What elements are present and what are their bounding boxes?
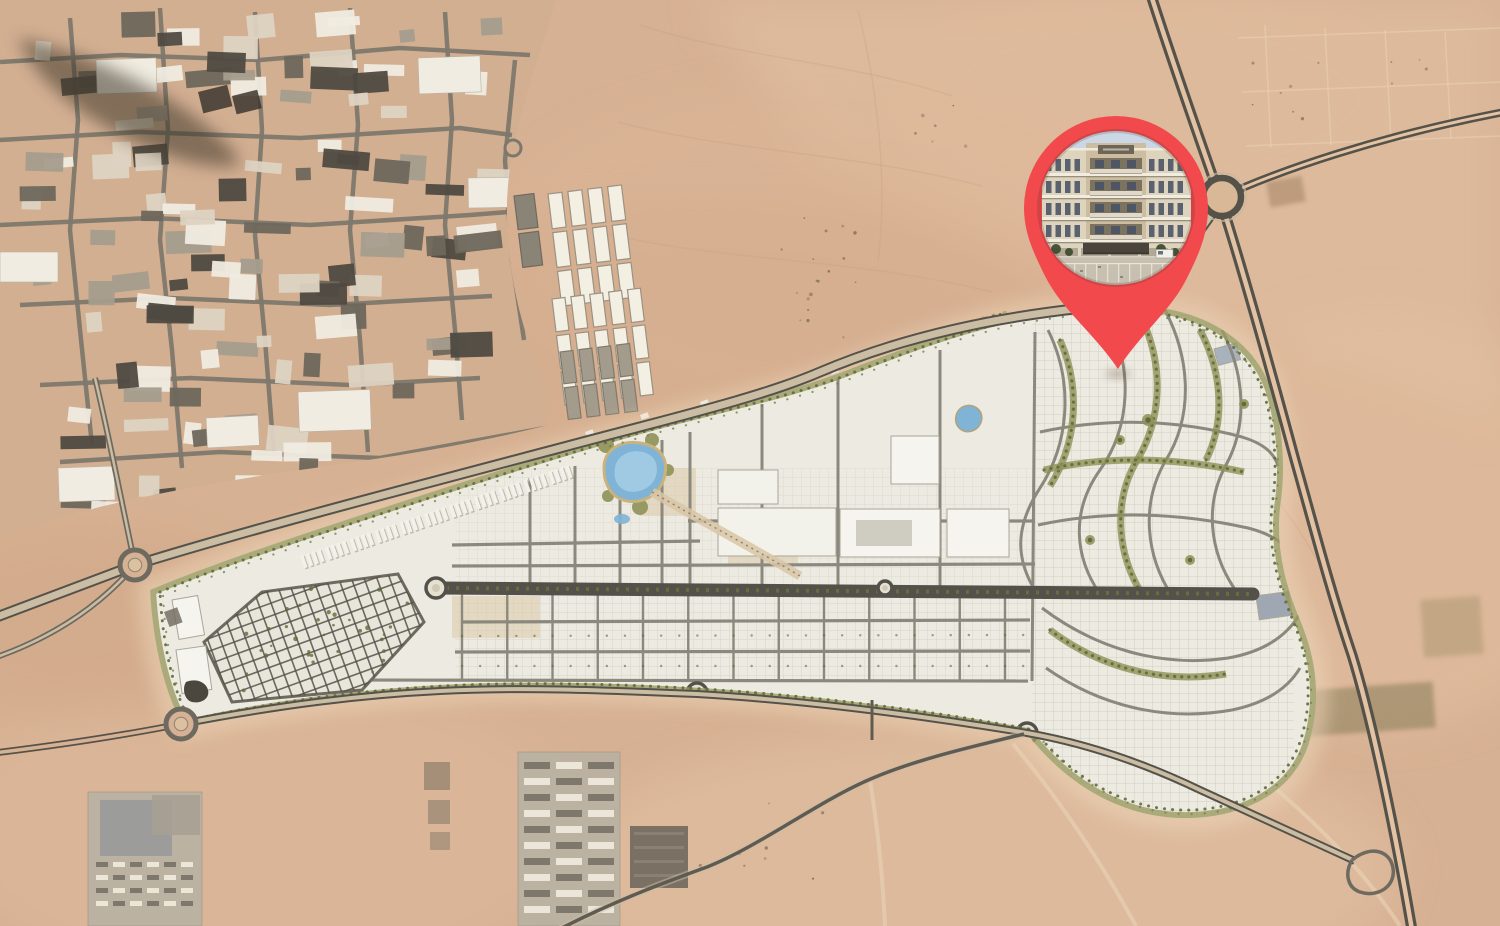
entrance-canopy: [1083, 243, 1149, 254]
map-viewport: [0, 0, 1500, 926]
satellite-map-image: [0, 0, 1500, 926]
pin-shadow: [1105, 370, 1131, 379]
